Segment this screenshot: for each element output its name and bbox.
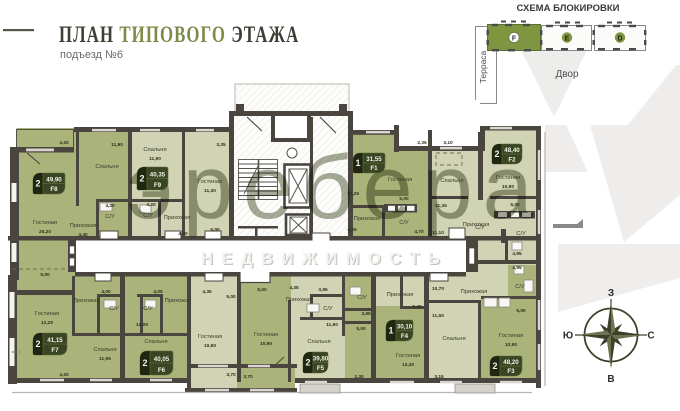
svg-text:10,90: 10,90: [260, 341, 272, 347]
svg-text:Гостиная: Гостиная: [496, 175, 520, 181]
svg-text:С/У: С/У: [399, 220, 409, 226]
svg-text:4,70: 4,70: [414, 229, 424, 235]
svg-text:4,95: 4,95: [512, 265, 522, 271]
svg-text:2: 2: [142, 358, 147, 368]
svg-text:Спальня: Спальня: [442, 336, 465, 342]
svg-text:11,90: 11,90: [111, 142, 123, 148]
svg-text:F: F: [512, 35, 517, 42]
svg-text:3,70: 3,70: [243, 374, 253, 380]
svg-text:4,35: 4,35: [202, 289, 212, 295]
svg-text:СХЕМА БЛОКИРОВКИ: СХЕМА БЛОКИРОВКИ: [517, 3, 620, 14]
svg-text:3,95: 3,95: [318, 287, 328, 293]
svg-text:20,20: 20,20: [39, 229, 51, 235]
svg-text:4,95: 4,95: [512, 251, 522, 257]
svg-text:11,90: 11,90: [149, 156, 161, 162]
svg-text:5,00: 5,00: [510, 202, 520, 208]
svg-text:4,25: 4,25: [347, 227, 357, 233]
svg-text:5,00: 5,00: [40, 272, 50, 278]
svg-text:48,40: 48,40: [504, 147, 520, 154]
svg-text:2: 2: [494, 149, 499, 159]
svg-text:F8: F8: [50, 186, 58, 193]
svg-text:F9: F9: [154, 182, 162, 189]
svg-text:Гостиная: Гостиная: [499, 333, 523, 339]
svg-text:1: 1: [355, 158, 360, 168]
svg-text:Спальня: Спальня: [95, 164, 118, 170]
svg-text:Прихожая: Прихожая: [73, 298, 100, 304]
svg-text:10,90: 10,90: [204, 343, 216, 349]
svg-text:F4: F4: [401, 333, 409, 340]
svg-text:11,50: 11,50: [432, 313, 444, 319]
svg-text:5,00: 5,00: [257, 287, 267, 293]
svg-text:4,60: 4,60: [178, 231, 188, 237]
svg-text:11,95: 11,95: [99, 356, 111, 362]
svg-text:13,40: 13,40: [402, 362, 414, 368]
svg-text:40,05: 40,05: [154, 356, 170, 363]
svg-text:НЕДВИЖИМОСТЬ: НЕДВИЖИМОСТЬ: [201, 250, 448, 268]
svg-text:Прихожая: Прихожая: [286, 297, 313, 303]
svg-text:С/У: С/У: [143, 213, 153, 219]
svg-text:4,35: 4,35: [289, 285, 299, 291]
svg-text:4,05: 4,05: [153, 289, 163, 295]
svg-text:12,05: 12,05: [136, 322, 148, 328]
svg-text:3,70: 3,70: [226, 372, 236, 378]
svg-text:2: 2: [35, 179, 40, 189]
svg-text:4,20: 4,20: [105, 203, 115, 209]
svg-text:Прихожая: Прихожая: [463, 222, 490, 228]
svg-text:39,80: 39,80: [313, 355, 329, 362]
svg-text:Спальня: Спальня: [93, 347, 116, 353]
svg-text:30,10: 30,10: [397, 323, 413, 330]
svg-text:С/У: С/У: [105, 214, 115, 220]
svg-text:41,15: 41,15: [47, 337, 63, 344]
svg-text:E: E: [565, 35, 570, 42]
svg-text:D: D: [617, 35, 622, 42]
svg-text:3,35: 3,35: [216, 142, 226, 148]
svg-text:2: 2: [139, 174, 144, 184]
svg-text:Гостиная: Гостиная: [254, 332, 278, 338]
svg-text:Ю: Ю: [563, 331, 573, 342]
svg-text:31,55: 31,55: [366, 156, 382, 163]
svg-text:1: 1: [388, 326, 393, 336]
svg-text:4,40: 4,40: [78, 232, 88, 238]
svg-text:Двор: Двор: [555, 69, 579, 80]
svg-text:11,10: 11,10: [432, 230, 444, 236]
svg-text:4,20: 4,20: [59, 140, 69, 146]
svg-text:Терраса: Терраса: [478, 50, 488, 83]
svg-text:15,25: 15,25: [347, 191, 359, 197]
svg-text:С/У: С/У: [109, 306, 119, 312]
svg-text:Спальня: Спальня: [440, 178, 463, 184]
svg-text:В: В: [607, 374, 614, 385]
svg-text:З: З: [608, 288, 614, 299]
svg-text:Прихожая: Прихожая: [165, 298, 192, 304]
svg-text:5,45: 5,45: [412, 304, 422, 310]
svg-text:3,15: 3,15: [434, 374, 444, 380]
svg-text:10,90: 10,90: [505, 342, 517, 348]
svg-text:10,90: 10,90: [502, 184, 514, 190]
svg-text:4,20: 4,20: [59, 372, 69, 378]
svg-text:Прихожая: Прихожая: [387, 292, 414, 298]
svg-text:F3: F3: [507, 368, 515, 375]
svg-text:48,20: 48,20: [503, 359, 519, 366]
svg-text:Гостиная: Гостиная: [35, 311, 59, 317]
svg-text:2,30: 2,30: [354, 374, 364, 380]
svg-text:12,20: 12,20: [41, 320, 53, 326]
svg-text:Спальня: Спальня: [143, 147, 166, 153]
svg-text:5,00: 5,00: [356, 326, 366, 332]
svg-text:Прихожая: Прихожая: [70, 223, 97, 229]
svg-text:49,90: 49,90: [46, 176, 62, 183]
svg-text:Спальня: Спальня: [144, 339, 167, 345]
svg-text:Прихожая: Прихожая: [164, 215, 191, 221]
svg-text:Гостиная: Гостиная: [396, 353, 420, 359]
svg-text:F2: F2: [508, 157, 516, 164]
svg-text:подъезд №6: подъезд №6: [60, 49, 123, 61]
svg-text:11,30: 11,30: [204, 188, 216, 194]
svg-text:F6: F6: [158, 367, 166, 374]
svg-text:3,10: 3,10: [443, 140, 453, 146]
svg-text:Прихожая: Прихожая: [461, 289, 488, 295]
svg-text:С/У: С/У: [143, 306, 153, 312]
svg-text:Прихожая: Прихожая: [354, 216, 381, 222]
svg-text:С/У: С/У: [515, 284, 525, 290]
svg-text:ПЛАН ТИПОВОГО ЭТАЖА: ПЛАН ТИПОВОГО ЭТАЖА: [59, 23, 299, 48]
svg-text:Гостиная: Гостиная: [388, 177, 412, 183]
svg-text:С/У: С/У: [357, 295, 367, 301]
svg-text:11,35: 11,35: [435, 203, 447, 209]
svg-text:2,35: 2,35: [417, 140, 427, 146]
svg-text:11,90: 11,90: [326, 322, 338, 328]
svg-text:5,00: 5,00: [226, 294, 236, 300]
svg-text:5,00: 5,00: [516, 308, 526, 314]
svg-text:5,00: 5,00: [399, 196, 409, 202]
svg-text:F5: F5: [317, 365, 325, 372]
svg-text:40,35: 40,35: [150, 171, 166, 178]
svg-text:С/У: С/У: [323, 306, 333, 312]
svg-text:5,00: 5,00: [210, 227, 220, 233]
svg-text:2: 2: [492, 361, 497, 371]
svg-text:Гостиная: Гостиная: [198, 179, 222, 185]
svg-text:Спальня: Спальня: [307, 339, 330, 345]
svg-text:Гостиная: Гостиная: [33, 220, 57, 226]
svg-text:F7: F7: [51, 347, 59, 354]
svg-text:С: С: [647, 331, 654, 342]
svg-text:2: 2: [35, 339, 40, 349]
svg-text:3,95: 3,95: [361, 311, 371, 317]
svg-text:10,70: 10,70: [432, 286, 444, 292]
svg-text:2: 2: [305, 358, 310, 368]
svg-text:F1: F1: [370, 165, 378, 172]
svg-text:С/У: С/У: [516, 231, 526, 237]
svg-text:4,20: 4,20: [146, 202, 156, 208]
svg-text:4,00: 4,00: [101, 289, 111, 295]
svg-text:Гостиная: Гостиная: [198, 334, 222, 340]
